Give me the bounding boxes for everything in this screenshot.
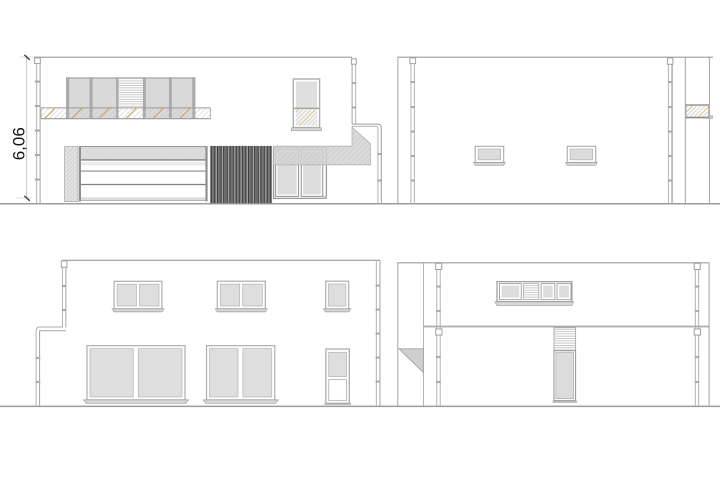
- svg-text:6,06: 6,06: [9, 127, 28, 160]
